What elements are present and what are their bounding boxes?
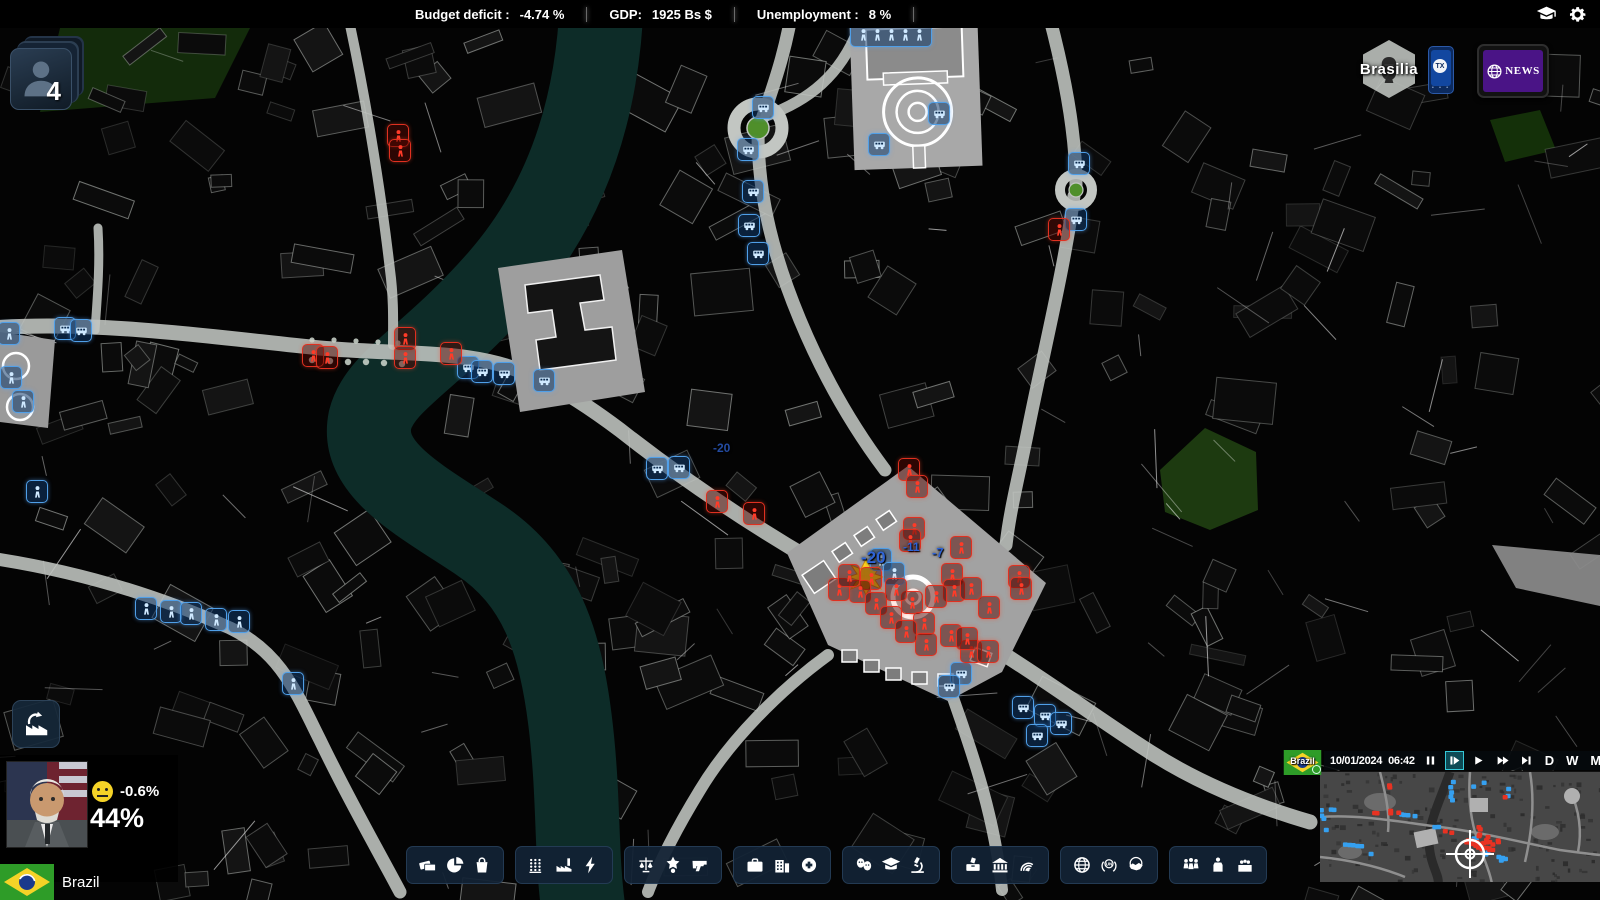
- rioter-marker[interactable]: [906, 475, 928, 498]
- bus-icon: [747, 185, 760, 198]
- pause-icon: [1424, 754, 1437, 767]
- speed-week-button[interactable]: W: [1563, 753, 1581, 768]
- ministry-compound: [498, 250, 645, 412]
- top-stats-bar: Budget deficit : -4.74 % GDP: 1925 Bs $ …: [0, 0, 1600, 28]
- cash-icon: [418, 855, 438, 875]
- person-icon: [918, 617, 931, 630]
- person-icon: [983, 601, 996, 614]
- ministry-toolbar: UN: [406, 846, 1267, 884]
- vehicle-marker[interactable]: [747, 242, 769, 265]
- stat-gdp: GDP: 1925 Bs $: [587, 7, 734, 22]
- game-time: 06:42: [1388, 755, 1415, 767]
- ballot-box-icon: [963, 855, 983, 875]
- vehicle-marker[interactable]: [752, 96, 774, 119]
- phone-dots: • • •: [1429, 85, 1453, 91]
- speed-day-button[interactable]: D: [1542, 753, 1557, 768]
- civilian-marker[interactable]: [12, 390, 34, 413]
- vehicle-marker[interactable]: [1026, 724, 1048, 747]
- rioter-marker[interactable]: [925, 585, 947, 608]
- fast-forward-button[interactable]: [1493, 751, 1512, 770]
- industry-shortcut-button[interactable]: [12, 700, 60, 748]
- person-icon: [904, 534, 917, 547]
- toolbar-group-economy[interactable]: [515, 846, 613, 884]
- person-icon: [3, 327, 16, 340]
- person-icon: [445, 347, 458, 360]
- person-icon: [5, 371, 18, 384]
- vehicle-marker[interactable]: [646, 457, 668, 480]
- rioter-marker[interactable]: [977, 640, 999, 663]
- wheat-icon: [527, 855, 547, 875]
- scales-icon: [636, 855, 656, 875]
- region-name: Brasilia: [1346, 61, 1432, 78]
- bus-icon: [943, 680, 956, 693]
- rioter-marker[interactable]: [915, 633, 937, 656]
- person-icon: [955, 541, 968, 554]
- rioter-marker[interactable]: [956, 627, 978, 650]
- rioter-marker[interactable]: [1048, 218, 1070, 241]
- approval-rating: 44%: [90, 803, 144, 834]
- rioter-marker[interactable]: [885, 578, 907, 601]
- time-control-bar: 10/01/2024 06:42 D W M: [1324, 751, 1600, 770]
- divider: [913, 7, 914, 22]
- toolbar-group-politics-society[interactable]: [1169, 846, 1267, 884]
- vehicle-marker[interactable]: [533, 369, 555, 392]
- skip-forward-button[interactable]: [1517, 751, 1536, 770]
- rioter-marker[interactable]: [838, 564, 860, 587]
- handshake-icon: [1126, 855, 1146, 875]
- region-button[interactable]: Brasilia: [1346, 38, 1432, 100]
- news-globe-icon: [1486, 63, 1503, 80]
- leader-portrait[interactable]: [6, 761, 88, 848]
- bus-icon: [651, 462, 664, 475]
- person-icon: [948, 584, 961, 597]
- bolt-icon: [581, 855, 601, 875]
- bus-icon: [1070, 213, 1083, 226]
- rioter-marker[interactable]: [895, 620, 917, 643]
- briefcase-icon: [745, 855, 765, 875]
- popularity-change: -0.6%: [120, 783, 159, 800]
- step-icon: [1448, 754, 1461, 767]
- minimap-country-button[interactable]: Brazil: [1283, 750, 1322, 775]
- vehicle-marker[interactable]: [70, 319, 92, 342]
- rioter-marker[interactable]: [394, 346, 416, 369]
- person-icon: [961, 632, 974, 645]
- pending-alerts-button[interactable]: 4: [10, 48, 72, 110]
- vehicle-marker[interactable]: [1012, 696, 1034, 719]
- bus-icon: [1055, 717, 1068, 730]
- radio-waves-icon: [1017, 855, 1037, 875]
- vehicle-marker[interactable]: [737, 138, 759, 161]
- person-icon: [1015, 582, 1028, 595]
- star-badge-icon: [663, 855, 683, 875]
- vehicle-marker[interactable]: [1050, 712, 1072, 735]
- person-icon: [913, 28, 926, 41]
- stat-unemployment: Unemployment : 8 %: [735, 7, 913, 22]
- message-bubble-icon: TX: [1433, 59, 1447, 73]
- vehicle-marker[interactable]: [868, 133, 890, 156]
- rioter-marker[interactable]: [440, 342, 462, 365]
- vehicle-marker[interactable]: [1068, 152, 1090, 175]
- masks-icon: [854, 855, 874, 875]
- game-date: 10/01/2024: [1330, 755, 1382, 767]
- news-label: NEWS: [1505, 65, 1539, 77]
- svg-text:UN: UN: [1106, 862, 1113, 867]
- toolbar-group-social-health[interactable]: [733, 846, 831, 884]
- person-icon: [899, 28, 912, 41]
- factory-arrow-icon: [21, 709, 51, 739]
- person-icon: [210, 613, 223, 626]
- rioter-marker[interactable]: [899, 529, 921, 552]
- person-icon: [399, 351, 412, 364]
- toolbar-group-law-order[interactable]: [624, 846, 722, 884]
- tutorial-icon[interactable]: [1536, 4, 1557, 25]
- rioter-marker[interactable]: [389, 139, 411, 162]
- person-icon: [965, 582, 978, 595]
- person-icon: [31, 485, 44, 498]
- bus-icon: [498, 367, 511, 380]
- bus-icon: [757, 101, 770, 114]
- vehicle-marker[interactable]: [928, 102, 950, 125]
- skip-forward-icon: [1520, 754, 1533, 767]
- person-icon: [287, 677, 300, 690]
- rioter-marker[interactable]: [743, 502, 765, 525]
- speed-month-button[interactable]: M: [1587, 753, 1600, 768]
- vehicle-marker[interactable]: [471, 360, 493, 383]
- bus-icon: [752, 247, 765, 260]
- bank-icon: [990, 855, 1010, 875]
- bus-icon: [873, 138, 886, 151]
- vehicle-marker[interactable]: [668, 456, 690, 479]
- civilian-marker[interactable]: [180, 602, 202, 625]
- person-icon: [900, 625, 913, 638]
- alert-count: 4: [47, 76, 61, 107]
- bus-icon: [476, 365, 489, 378]
- bus-icon: [75, 324, 88, 337]
- civilian-marker[interactable]: [135, 597, 157, 620]
- person-icon: [1053, 223, 1066, 236]
- mood-face-icon: [92, 781, 113, 802]
- civilian-marker[interactable]: [228, 610, 250, 633]
- bus-icon: [538, 374, 551, 387]
- shopping-bag-icon: [472, 855, 492, 875]
- civilian-marker[interactable]: [26, 480, 48, 503]
- person-icon: [394, 144, 407, 157]
- news-tv-button[interactable]: NEWS: [1477, 44, 1549, 98]
- selection-ring-icon: [1312, 765, 1321, 774]
- person-icon: [399, 332, 412, 345]
- play-icon: [1472, 754, 1485, 767]
- minimap[interactable]: [1320, 771, 1600, 882]
- civilian-marker[interactable]: [0, 366, 22, 389]
- bus-icon: [1017, 701, 1030, 714]
- globe-icon: [1072, 855, 1092, 875]
- person-icon: [982, 645, 995, 658]
- toolbar-group-foreign-affairs[interactable]: UN: [1060, 846, 1158, 884]
- person-icon: [930, 590, 943, 603]
- bus-icon: [1031, 729, 1044, 742]
- vehicle-marker[interactable]: [938, 675, 960, 698]
- person-icon: [906, 596, 919, 609]
- microscope-icon: [908, 855, 928, 875]
- person-icon: [711, 495, 724, 508]
- toolbar-group-culture-education[interactable]: [842, 846, 940, 884]
- vehicle-marker[interactable]: [738, 214, 760, 237]
- person-icon: [321, 351, 334, 364]
- pie-chart-icon: [445, 855, 465, 875]
- person-icon: [885, 28, 898, 41]
- civilian-marker[interactable]: [205, 608, 227, 631]
- rioter-marker[interactable]: [706, 490, 728, 513]
- bus-icon: [1073, 157, 1086, 170]
- person-icon: [920, 638, 933, 651]
- stat-budget-deficit: Budget deficit : -4.74 %: [393, 7, 586, 22]
- pause-button[interactable]: [1421, 751, 1440, 770]
- person-icon: [748, 507, 761, 520]
- civilian-marker[interactable]: [0, 322, 20, 345]
- person-icon: [17, 395, 30, 408]
- civilian-marker[interactable]: [282, 672, 304, 695]
- rioter-marker[interactable]: [950, 536, 972, 559]
- hospital-icon: [772, 855, 792, 875]
- person-icon: [911, 480, 924, 493]
- factory-icon: [554, 855, 574, 875]
- grad-cap-icon: [881, 855, 901, 875]
- person-icon: [165, 605, 178, 618]
- crowd-icon: [1181, 855, 1201, 875]
- person-icon: [871, 28, 884, 41]
- country-flag-row[interactable]: Brazil: [0, 864, 100, 900]
- step-button[interactable]: [1445, 751, 1464, 770]
- vehicle-marker[interactable]: [742, 180, 764, 203]
- fast-forward-icon: [1496, 754, 1509, 767]
- civilian-marker[interactable]: [160, 600, 182, 623]
- bus-icon: [743, 219, 756, 232]
- person-icon: [843, 569, 856, 582]
- person-icon: [185, 607, 198, 620]
- vehicle-marker[interactable]: [493, 362, 515, 385]
- settings-icon[interactable]: [1567, 4, 1588, 25]
- toolbar-group-state-institutions[interactable]: [951, 846, 1049, 884]
- rioter-marker[interactable]: [316, 346, 338, 369]
- bus-icon: [933, 107, 946, 120]
- podium-icon: [1208, 855, 1228, 875]
- person-icon: [857, 28, 870, 41]
- bus-icon: [742, 143, 755, 156]
- pistol-icon: [690, 855, 710, 875]
- play-button[interactable]: [1469, 751, 1488, 770]
- parliament-icon: [1235, 855, 1255, 875]
- person-icon: [890, 583, 903, 596]
- popularity-trend: -0.6%: [92, 781, 159, 802]
- health-plus-icon: [799, 855, 819, 875]
- person-icon: [233, 615, 246, 628]
- un-globe-icon: UN: [1099, 855, 1119, 875]
- brazil-flag-icon: [0, 864, 54, 900]
- messages-phone-button[interactable]: TX • • •: [1428, 46, 1454, 94]
- country-name: Brazil: [62, 874, 100, 891]
- person-icon: [140, 602, 153, 615]
- player-panel: -0.6% 44% Brazil: [0, 755, 178, 882]
- toolbar-group-finance[interactable]: [406, 846, 504, 884]
- bus-icon: [673, 461, 686, 474]
- rioter-marker[interactable]: [1010, 577, 1032, 600]
- rioter-marker[interactable]: [978, 596, 1000, 619]
